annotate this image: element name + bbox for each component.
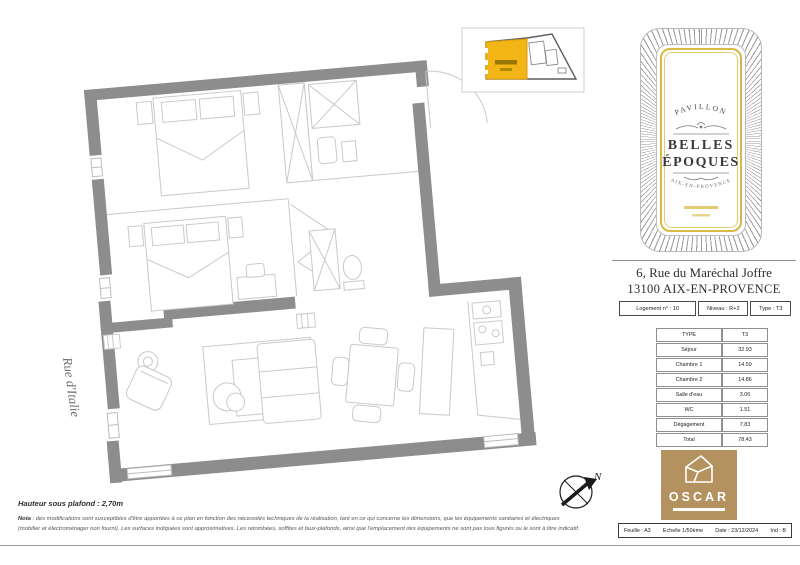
address-street: 6, Rue du Maréchal Joffre — [612, 265, 796, 281]
nota-text-1: : des modifications sont susceptibles d'… — [31, 516, 560, 522]
area-value: 78.43 — [722, 433, 768, 447]
area-value: 7.83 — [722, 418, 768, 432]
area-header-label: TYPE — [656, 328, 722, 342]
table-row: Séjour 32.93 — [656, 343, 768, 357]
area-label: Dégagement — [656, 418, 722, 432]
bed-2 — [128, 212, 277, 312]
ceiling-height-note: Hauteur sous plafond : 2,70m — [18, 499, 123, 508]
area-header-row: TYPE T3 — [656, 328, 768, 342]
table-row: Chambre 1 14.59 — [656, 358, 768, 372]
svg-text:AIX-EN-PROVENCE: AIX-EN-PROVENCE — [670, 178, 733, 190]
compass-north-label: N — [593, 471, 602, 483]
table-row: Chambre 2 14.86 — [656, 373, 768, 387]
oscar-wordmark: OSCAR — [661, 490, 737, 504]
bed-1 — [136, 89, 266, 197]
area-label: Salle d'eau — [656, 388, 722, 402]
unit-info-row: Logement n° : 10 Niveau : R+2 Type : T3 — [619, 301, 791, 316]
area-label: Chambre 1 — [656, 358, 722, 372]
address-city: 13100 AIX-EN-PROVENCE — [612, 282, 796, 297]
area-value: 14.59 — [722, 358, 768, 372]
unit-highlight — [486, 39, 527, 79]
brand-card: PAVILLON BELLES ÉPOQUES AIX-EN-PROVENCE — [640, 28, 762, 252]
card-ornament-top — [676, 123, 726, 130]
unit-level: Niveau : R+2 — [698, 301, 748, 316]
apartment-plan — [76, 54, 537, 484]
card-ornament-bottom — [684, 177, 718, 180]
table-row: Dégagement 7.83 — [656, 418, 768, 432]
title-block: Feuille : A3 Echelle 1/50ème Date : 23/1… — [618, 523, 792, 538]
unit-number: Logement n° : 10 — [619, 301, 696, 316]
oscar-logo: OSCAR — [661, 450, 737, 520]
card-gold-signature — [684, 206, 718, 217]
street-label: Rue d'Italie — [60, 355, 83, 418]
area-value: 3.06 — [722, 388, 768, 402]
sheet-date: Date : 23/12/2024 — [715, 528, 758, 534]
area-label: Chambre 2 — [656, 373, 722, 387]
compass-icon: N — [560, 471, 602, 508]
plan-sheet: Rue d'Italie N — [0, 0, 800, 565]
nota-line-2: (mobilier et électroménager non fourni).… — [18, 526, 579, 532]
oscar-underline — [673, 508, 725, 511]
card-city-arc: AIX-EN-PROVENCE — [670, 178, 733, 190]
area-value: 32.93 — [722, 343, 768, 357]
area-label: Total — [656, 433, 722, 447]
unit-type: Type : T3 — [750, 301, 791, 316]
area-value: 1.51 — [722, 403, 768, 417]
living-furniture — [120, 315, 462, 451]
sheet-index: Ind : B — [770, 528, 786, 534]
table-row: WC 1.51 — [656, 403, 768, 417]
area-value: 14.86 — [722, 373, 768, 387]
floor-plan: Rue d'Italie N — [0, 0, 620, 510]
area-table: TYPE T3 Séjour 32.93 Chambre 1 14.59 Cha… — [656, 327, 768, 448]
table-row: Salle d'eau 3.06 — [656, 388, 768, 402]
area-label: WC — [656, 403, 722, 417]
area-label: Séjour — [656, 343, 722, 357]
area-header-value: T3 — [722, 328, 768, 342]
svg-text:PAVILLON: PAVILLON — [673, 102, 729, 117]
nota-text-2: (mobilier et électroménager non fourni).… — [18, 526, 579, 532]
card-title-epoques: ÉPOQUES — [662, 153, 739, 170]
address-block: 6, Rue du Maréchal Joffre 13100 AIX-EN-P… — [612, 260, 796, 297]
key-plan — [462, 28, 584, 92]
table-row: Total 78.43 — [656, 433, 768, 447]
card-pavillon-arc: PAVILLON — [673, 102, 729, 117]
card-title-belles: BELLES — [668, 138, 734, 153]
nota-label: Nota — [18, 516, 31, 522]
card-text: PAVILLON BELLES ÉPOQUES AIX-EN-PROVENCE — [640, 28, 762, 252]
sheet-scale: Echelle 1/50ème — [663, 528, 703, 534]
sheet-border-line — [0, 545, 800, 546]
sheet-size: Feuille : A3 — [624, 528, 651, 534]
nota-line-1: Nota : des modifications sont susceptibl… — [18, 516, 560, 522]
